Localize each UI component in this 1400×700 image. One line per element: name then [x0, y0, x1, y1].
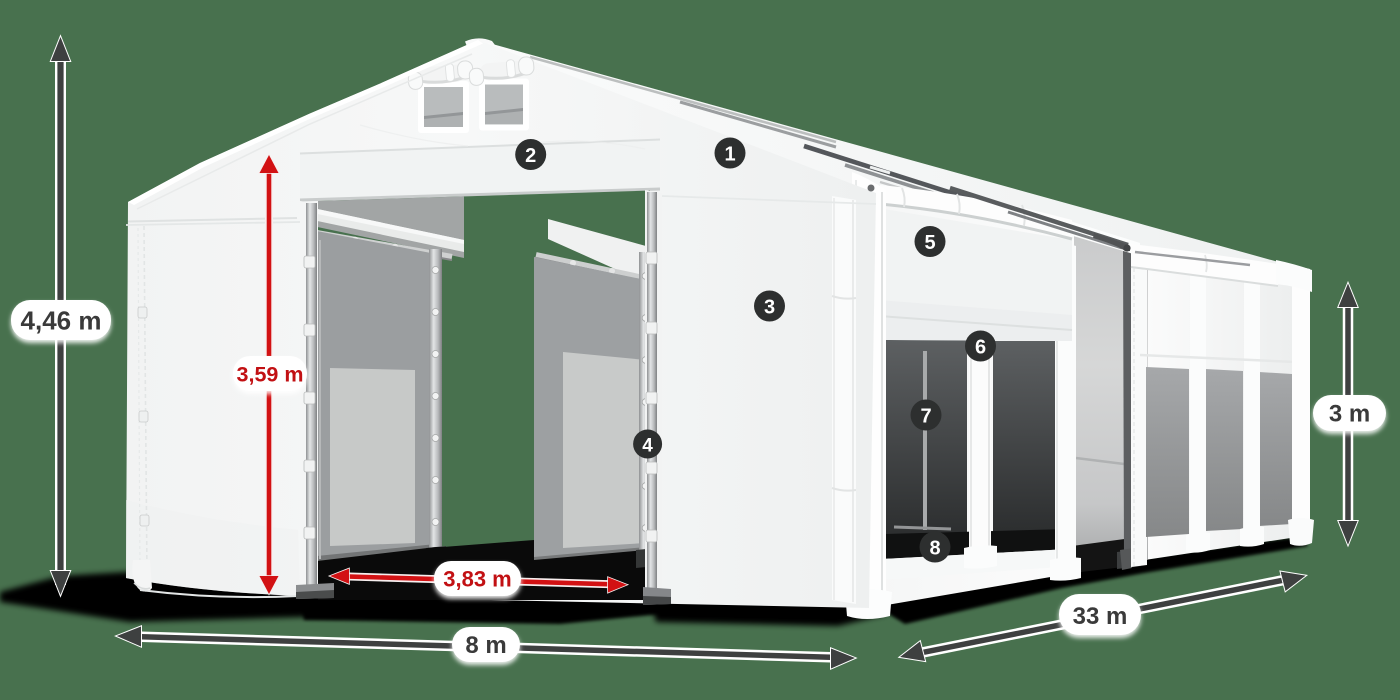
svg-text:3: 3 [764, 297, 775, 319]
svg-text:3,59 m: 3,59 m [237, 363, 304, 387]
svg-text:1: 1 [724, 144, 735, 166]
svg-text:2: 2 [525, 145, 536, 167]
svg-text:3,83 m: 3,83 m [443, 567, 512, 592]
svg-text:4: 4 [642, 436, 653, 457]
svg-text:8: 8 [929, 538, 940, 560]
svg-text:3 m: 3 m [1329, 401, 1370, 428]
svg-text:6: 6 [975, 337, 986, 359]
svg-text:5: 5 [924, 232, 935, 254]
svg-text:33 m: 33 m [1073, 603, 1128, 630]
svg-text:4,46 m: 4,46 m [21, 306, 102, 336]
svg-text:7: 7 [920, 406, 931, 428]
svg-text:8 m: 8 m [465, 632, 506, 659]
